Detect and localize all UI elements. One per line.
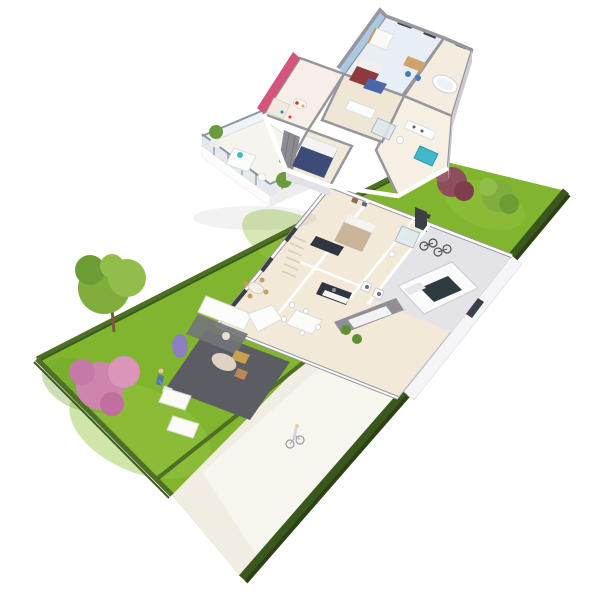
chair: [264, 290, 269, 295]
toy-red: [295, 101, 299, 105]
flowering-shrub: [69, 359, 95, 385]
toilet: [389, 251, 395, 257]
tree-canopy: [75, 255, 105, 285]
dining-chair: [282, 317, 287, 322]
scene-svg: [0, 0, 600, 600]
dining-chair: [316, 325, 321, 330]
dryer-door: [377, 292, 381, 296]
dining-chair: [290, 303, 295, 308]
toilet-upper: [397, 137, 404, 144]
toy-blue: [281, 111, 284, 114]
flowering-shrub: [108, 356, 140, 388]
sink: [421, 130, 424, 133]
desk-chair-blue: [415, 75, 421, 81]
floorplan-render-canvas: [0, 0, 600, 600]
sink: [413, 126, 416, 129]
green-shrub-shade: [499, 194, 519, 214]
entrance-shrub: [352, 334, 362, 344]
desk-chair-blue: [405, 71, 411, 77]
coffee-table: [222, 332, 230, 340]
green-shrub-light: [479, 178, 497, 196]
rider-body: [294, 429, 296, 437]
chair: [260, 278, 265, 283]
island-sink: [332, 288, 336, 292]
flowering-shrub: [100, 392, 124, 416]
chair: [248, 294, 253, 299]
teal-cushion: [237, 152, 243, 158]
entrance-shrub: [341, 325, 351, 335]
gardener-head: [159, 369, 164, 374]
planter-shrub: [209, 125, 223, 139]
chair: [244, 282, 249, 287]
soft-shadow: [193, 206, 317, 230]
toy-red: [289, 116, 292, 119]
toy-yellow: [302, 105, 305, 108]
dining-chair: [304, 309, 309, 314]
rider-head: [295, 424, 299, 428]
red-shrub-shade: [454, 181, 474, 201]
washer-door: [365, 285, 369, 289]
balcony-chair: [258, 173, 266, 181]
dining-chair: [300, 331, 305, 336]
tree-canopy: [100, 254, 124, 278]
lavender-bush: [172, 334, 188, 358]
